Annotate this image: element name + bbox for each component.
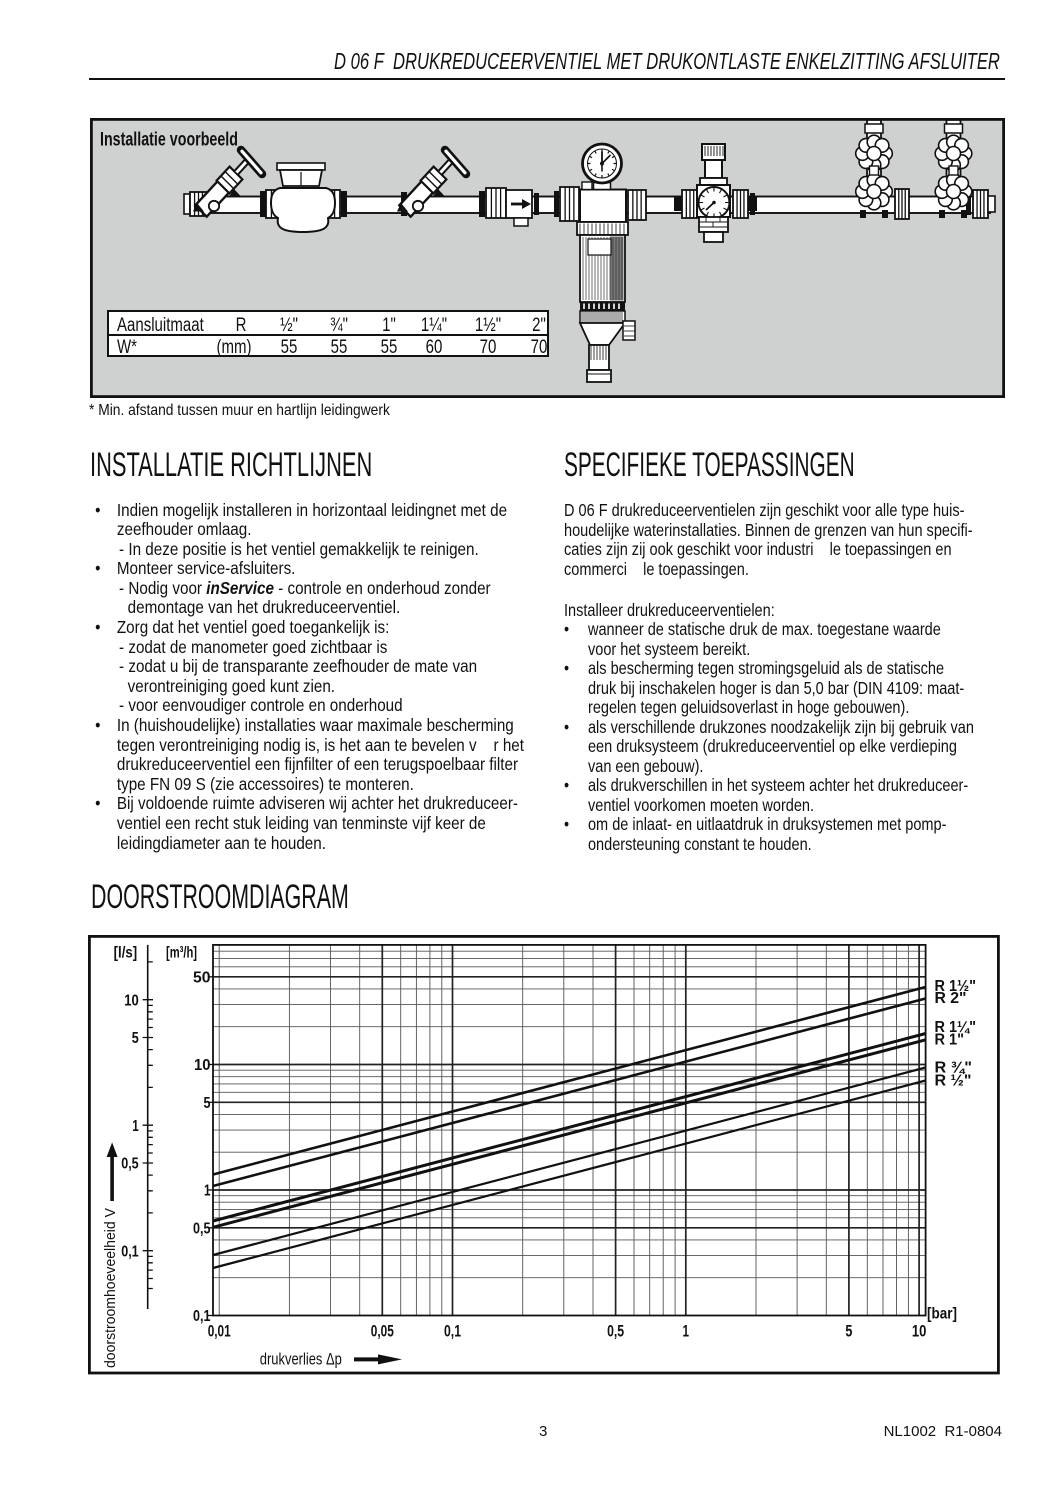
svg-text:10: 10 <box>912 1322 927 1341</box>
svg-text:Installatie voorbeeld: Installatie voorbeeld <box>100 129 238 150</box>
svg-text:R 2": R 2" <box>935 990 967 1007</box>
svg-text:5: 5 <box>845 1322 852 1341</box>
svg-text:1: 1 <box>683 1322 690 1341</box>
svg-text:50: 50 <box>193 969 211 986</box>
svg-text:1: 1 <box>204 1183 211 1200</box>
svg-text:10: 10 <box>124 992 139 1009</box>
svg-text:doorstroomhoeveelheid V: doorstroomhoeveelheid V <box>102 1208 119 1368</box>
svg-text:0,5: 0,5 <box>193 1220 211 1237</box>
svg-text:R ½": R ½" <box>935 1073 972 1090</box>
svg-text:[l/s]: [l/s] <box>114 945 137 962</box>
svg-text:0,5: 0,5 <box>607 1322 624 1341</box>
svg-text:R 1": R 1" <box>935 1032 965 1049</box>
svg-text:0,01: 0,01 <box>208 1322 231 1341</box>
svg-text:[m³/h]: [m³/h] <box>166 945 197 962</box>
svg-text:5: 5 <box>204 1095 211 1112</box>
svg-text:10: 10 <box>194 1057 211 1074</box>
svg-text:5: 5 <box>132 1030 139 1047</box>
svg-text:1: 1 <box>132 1118 139 1135</box>
svg-text:0,5: 0,5 <box>121 1156 139 1173</box>
svg-text:0,05: 0,05 <box>371 1322 394 1341</box>
svg-text:0,1: 0,1 <box>121 1243 139 1260</box>
svg-text:[bar]: [bar] <box>927 1306 957 1323</box>
svg-text:0,1: 0,1 <box>444 1322 461 1341</box>
svg-text:drukverlies Δp: drukverlies Δp <box>260 1351 342 1369</box>
